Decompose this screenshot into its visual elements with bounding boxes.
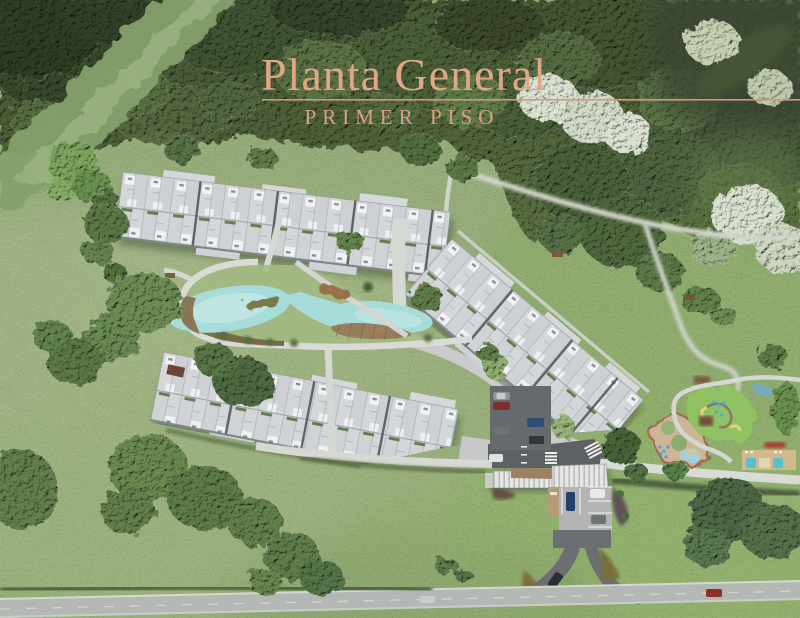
- svg-text:PRIMER PISO: PRIMER PISO: [305, 105, 500, 129]
- svg-text:Planta General: Planta General: [261, 49, 547, 100]
